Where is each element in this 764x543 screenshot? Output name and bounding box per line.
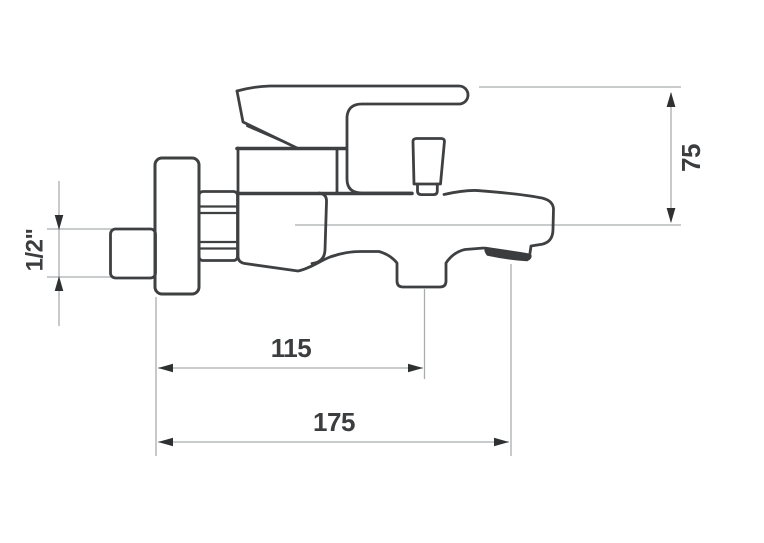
hex-nut — [199, 192, 238, 261]
label-inlet-size: 1/2" — [22, 229, 49, 272]
arrow-115-left — [158, 364, 173, 372]
diverter-knob — [413, 139, 444, 195]
dimension-labels: 115 175 75 1/2" — [22, 144, 707, 437]
technical-drawing-canvas: 115 175 75 1/2" — [0, 0, 764, 543]
label-75: 75 — [676, 144, 706, 172]
arrow-75-bottom — [667, 208, 676, 223]
wall-flange — [155, 158, 199, 294]
dimension-arrows — [55, 92, 676, 446]
dimension-lines — [47, 87, 681, 456]
arrow-75-top — [667, 92, 676, 107]
handle-base-inner-edge — [247, 126, 293, 146]
spout — [444, 190, 554, 253]
bath-mixer-diagram: 115 175 75 1/2" — [0, 0, 764, 543]
arrow-inlet-top — [55, 215, 64, 230]
pull-knob — [238, 148, 484, 287]
arrow-115-right — [408, 364, 423, 372]
aerator — [485, 248, 531, 261]
label-175: 175 — [313, 407, 355, 437]
arrow-inlet-bottom — [55, 276, 64, 291]
faucet-drawing — [111, 86, 554, 294]
label-115: 115 — [271, 333, 311, 363]
arrow-175-left — [158, 438, 173, 446]
handle-base-edge — [237, 91, 297, 148]
arrow-175-right — [494, 438, 509, 446]
inlet-pipe — [111, 229, 156, 278]
